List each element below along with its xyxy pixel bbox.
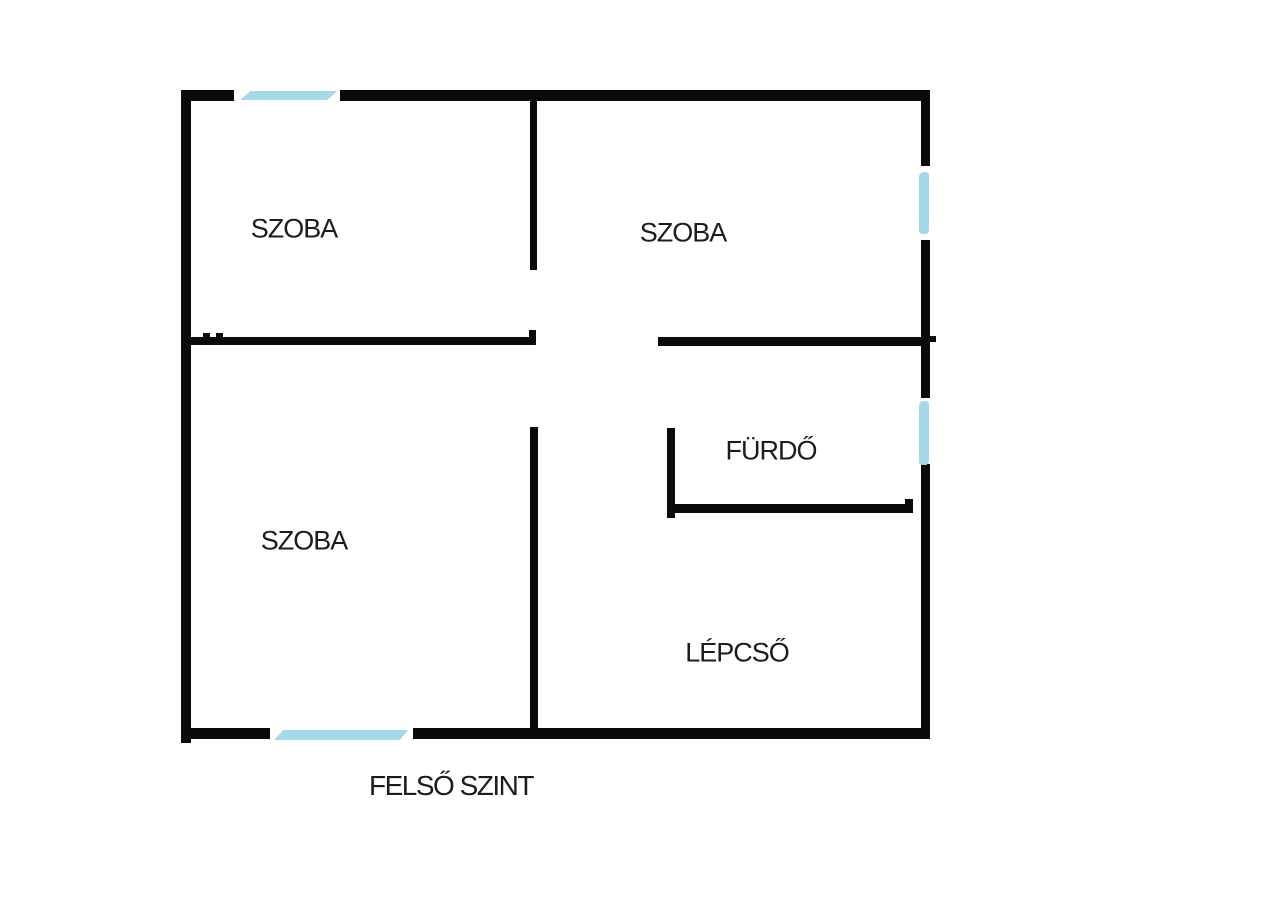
wall-center-vertical-lower (530, 427, 538, 728)
wall-bathroom-bottom (668, 504, 913, 513)
wall-outer-right-lower-segment (921, 464, 930, 738)
floor-title: FELSŐ SZINT (369, 770, 533, 802)
wall-center-vertical-upper (530, 101, 537, 270)
room-label-top-right: SZOBA (640, 218, 727, 249)
window-top-wall (240, 91, 337, 100)
wall-middle-horizontal-left-endcap (529, 330, 536, 345)
room-label-staircase: LÉPCSŐ (685, 638, 789, 669)
wall-outer-right-upper-segment (921, 90, 930, 166)
window-right-wall-upper (919, 172, 929, 234)
room-label-top-left: SZOBA (251, 214, 338, 245)
wall-outer-bottom-right-segment (413, 728, 930, 739)
wall-middle-horizontal-left-bump-1 (203, 333, 210, 338)
wall-middle-horizontal-left (183, 337, 536, 345)
wall-middle-horizontal-left-bump-2 (216, 333, 223, 338)
room-label-bottom-left: SZOBA (261, 526, 348, 557)
wall-outer-left (181, 90, 191, 743)
window-right-wall-lower (919, 401, 929, 465)
wall-bathroom-bottom-endcap (905, 499, 913, 505)
wall-outer-bottom-left-segment (181, 728, 270, 739)
window-bottom-wall (274, 730, 408, 740)
wall-outer-top-left-segment (181, 90, 234, 101)
room-label-bathroom: FÜRDŐ (726, 436, 817, 467)
wall-middle-horizontal-right-tick (930, 336, 936, 342)
wall-middle-horizontal-right (658, 337, 930, 346)
floor-plan: SZOBA SZOBA SZOBA FÜRDŐ LÉPCSŐ FELSŐ SZI… (0, 0, 1280, 914)
wall-outer-right-middle-segment (921, 240, 930, 398)
wall-outer-top-right-segment (340, 90, 930, 101)
